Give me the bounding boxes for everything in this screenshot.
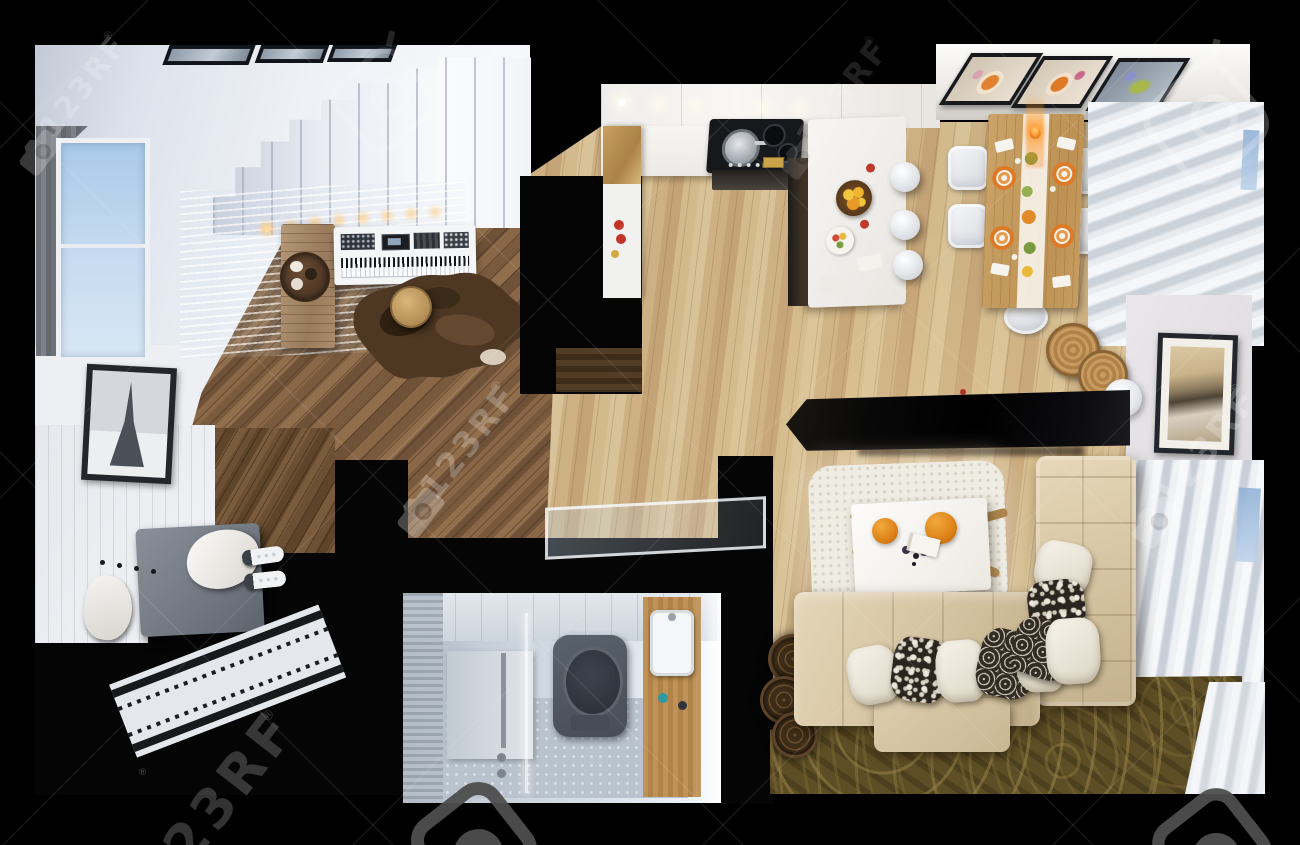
- stock-photo-3d-floorplan: 123RF ® 123RF ® 123RF ® 123RF ® 23RF ® ®: [0, 0, 1300, 845]
- watermark-brand-text: 123RF: [1147, 380, 1267, 518]
- watermark-dark-tag-logo: [409, 780, 550, 845]
- watermark-overlay: 123RF ® 123RF ® 123RF ® 123RF ® 23RF ® ®: [0, 0, 1300, 845]
- watermark-text: 123RF ®: [1146, 379, 1267, 517]
- watermark-dark-tag-logo: [1151, 787, 1285, 845]
- watermark-text: 123RF ®: [412, 376, 527, 507]
- watermark-brand-partial-text: 23RF: [151, 697, 310, 845]
- watermark-tag-logo: [1134, 39, 1285, 189]
- watermark-registered-mark: ®: [138, 768, 147, 778]
- watermark-text: 123RF ®: [788, 30, 897, 154]
- watermark-brand-text: 123RF: [412, 376, 527, 507]
- watermark-brand-text: 123RF: [33, 28, 135, 145]
- watermark-diagonal-lines: [0, 0, 1300, 845]
- watermark-text: 123RF ®: [32, 27, 135, 145]
- watermark-text: 23RF ®: [151, 697, 310, 845]
- watermark-brand-text: 123RF: [788, 30, 897, 154]
